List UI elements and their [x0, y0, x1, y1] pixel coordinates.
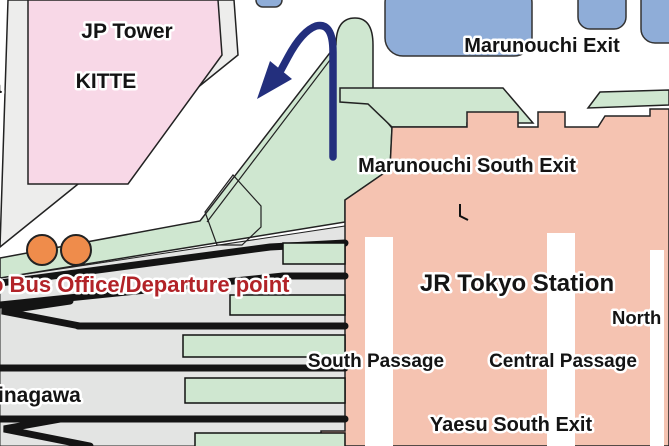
platform-rect	[283, 243, 345, 264]
label-north-passage-partial: North	[612, 307, 661, 328]
label-kitte: KITTE	[76, 70, 137, 93]
map-canvas: JP Tower KITTE Marunouchi Exit Marunouch…	[0, 0, 669, 446]
label-central-passage: Central Passage	[489, 351, 637, 372]
plaza-blue-small-2	[641, 0, 669, 43]
platform-rect	[230, 295, 345, 315]
tokyo-station-map: JP Tower KITTE Marunouchi Exit Marunouch…	[0, 0, 669, 446]
plaza-blue-small-1	[578, 0, 626, 29]
plaza-blue-tiny	[256, 0, 282, 7]
platform-rect	[185, 378, 345, 403]
concourse-green-right	[588, 90, 669, 108]
label-jr-tokyo-station: JR Tokyo Station	[420, 270, 614, 297]
bus-stop-marker-icon	[61, 235, 91, 265]
label-jp-tower: JP Tower	[81, 20, 172, 43]
label-yaesu-south-exit: Yaesu South Exit	[430, 414, 593, 436]
passage-bar-south	[365, 237, 393, 446]
passage-bar-north	[650, 250, 664, 446]
label-south-passage: South Passage	[308, 351, 444, 372]
platform-rect	[195, 433, 345, 446]
bus-stop-marker-icon	[27, 235, 57, 265]
label-bus-office-departure: o Bus Office/Departure point	[0, 272, 290, 297]
label-shinagawa-partial: inagawa	[0, 384, 81, 407]
label-marunouchi-exit: Marunouchi Exit	[464, 35, 620, 57]
label-marunouchi-south-exit: Marunouchi South Exit	[358, 155, 576, 177]
